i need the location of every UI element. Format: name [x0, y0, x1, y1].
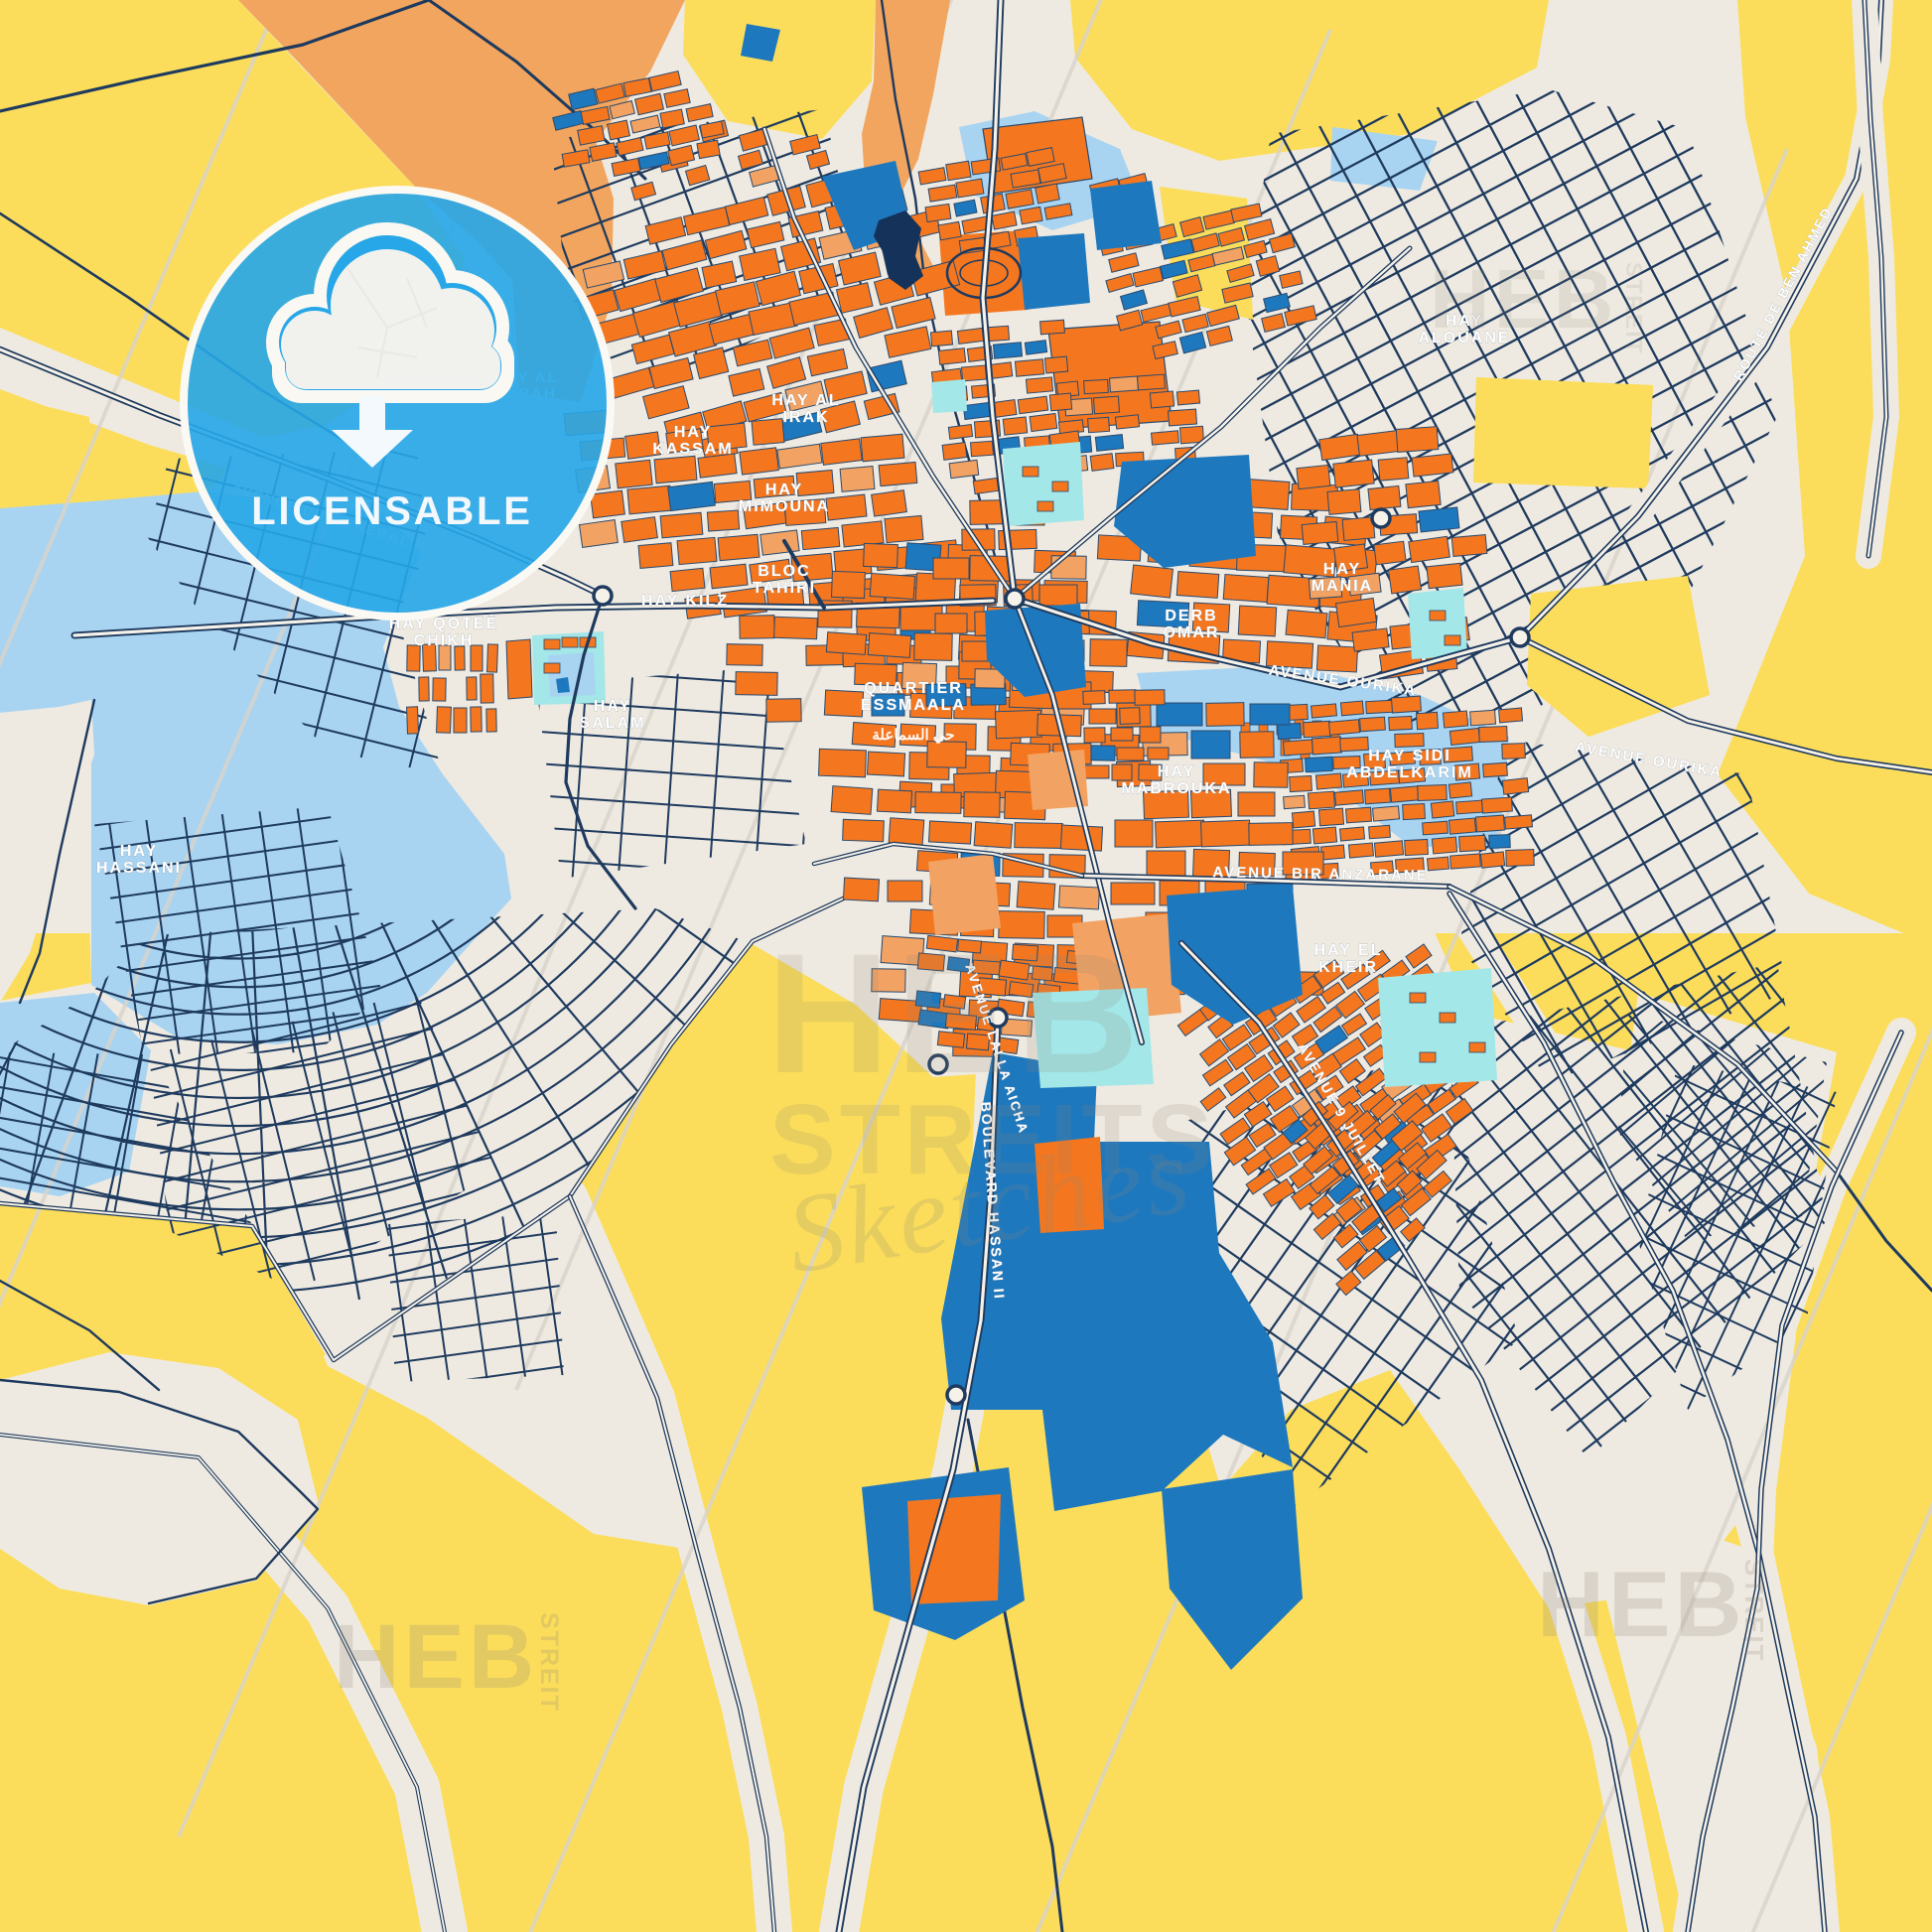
svg-text:LICENSABLE: LICENSABLE	[251, 489, 533, 533]
svg-text:حي السماعلة: حي السماعلة	[872, 727, 954, 745]
svg-text:HAY ELKHEIR: HAY ELKHEIR	[1314, 942, 1383, 976]
svg-text:HAY KILZ: HAY KILZ	[641, 593, 729, 610]
svg-text:HEB: HEB	[1430, 252, 1617, 345]
svg-text:HEB: HEB	[1537, 1552, 1745, 1656]
svg-text:BLOCTAHIRI: BLOCTAHIRI	[753, 563, 816, 597]
svg-text:STREIT: STREIT	[1739, 1559, 1769, 1662]
svg-text:HEB: HEB	[766, 918, 1145, 1109]
svg-text:QUARTIERESSMAALA: QUARTIERESSMAALA	[861, 680, 966, 714]
svg-text:STREIT: STREIT	[1621, 262, 1647, 355]
svg-text:HEB: HEB	[334, 1606, 538, 1708]
svg-text:DERBOMAR: DERBOMAR	[1164, 608, 1220, 641]
svg-text:STREIT: STREIT	[535, 1612, 563, 1713]
